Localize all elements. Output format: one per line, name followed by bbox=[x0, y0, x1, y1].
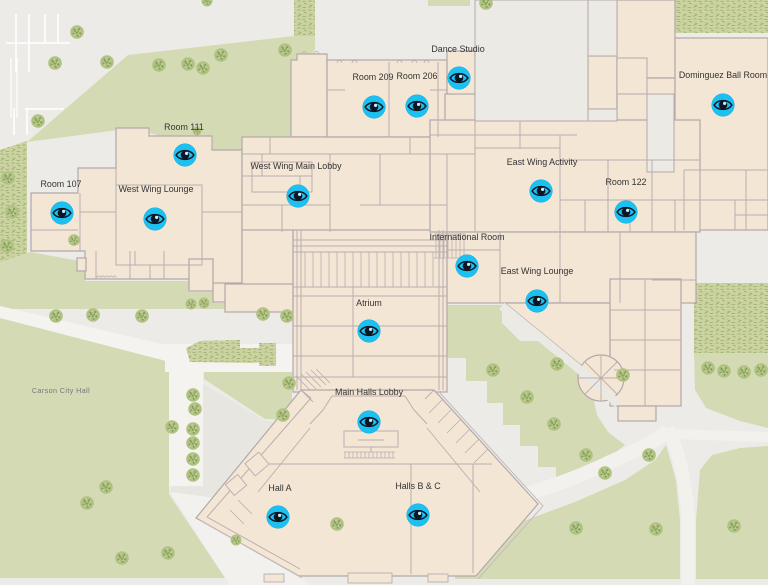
svg-text:Halls B & C: Halls B & C bbox=[395, 481, 441, 491]
svg-text:West Wing Lounge: West Wing Lounge bbox=[119, 184, 194, 194]
svg-text:Carson City Hall: Carson City Hall bbox=[32, 386, 90, 395]
svg-text:Room 111: Room 111 bbox=[164, 122, 204, 132]
svg-text:Room 209: Room 209 bbox=[353, 72, 394, 82]
svg-text:International Room: International Room bbox=[430, 232, 505, 242]
svg-text:Room 122: Room 122 bbox=[606, 177, 647, 187]
svg-text:East Wing Lounge: East Wing Lounge bbox=[501, 266, 574, 276]
svg-text:West Wing Main Lobby: West Wing Main Lobby bbox=[250, 161, 342, 171]
svg-text:Dominguez Ball Room: Dominguez Ball Room bbox=[679, 70, 767, 80]
svg-text:Room 206: Room 206 bbox=[397, 71, 438, 81]
svg-text:Room 107: Room 107 bbox=[41, 179, 82, 189]
svg-text:East Wing Activity: East Wing Activity bbox=[507, 157, 578, 167]
svg-text:Hall A: Hall A bbox=[268, 483, 291, 493]
svg-text:Main Halls Lobby: Main Halls Lobby bbox=[335, 387, 404, 397]
svg-text:Dance Studio: Dance Studio bbox=[431, 44, 484, 54]
svg-text:Atrium: Atrium bbox=[356, 298, 382, 308]
